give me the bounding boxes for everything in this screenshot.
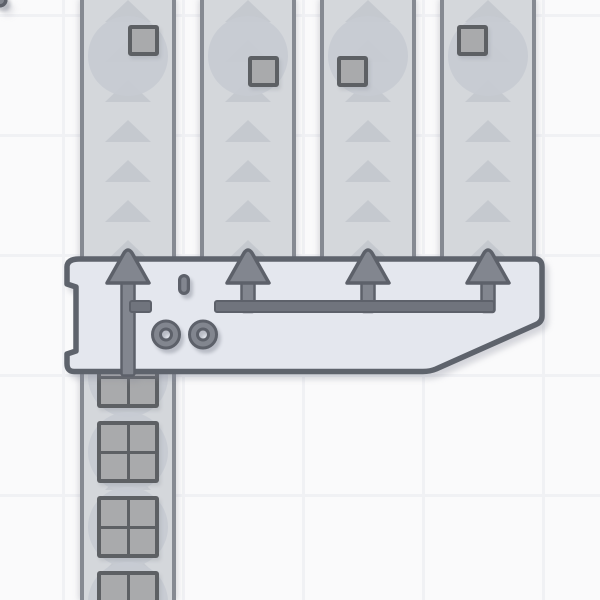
input-output-shaft (122, 280, 135, 376)
quad-cutter-building[interactable] (0, 0, 600, 600)
distribution-bar-stub (130, 301, 151, 312)
game-viewport (0, 0, 600, 600)
distribution-bar (215, 301, 494, 312)
